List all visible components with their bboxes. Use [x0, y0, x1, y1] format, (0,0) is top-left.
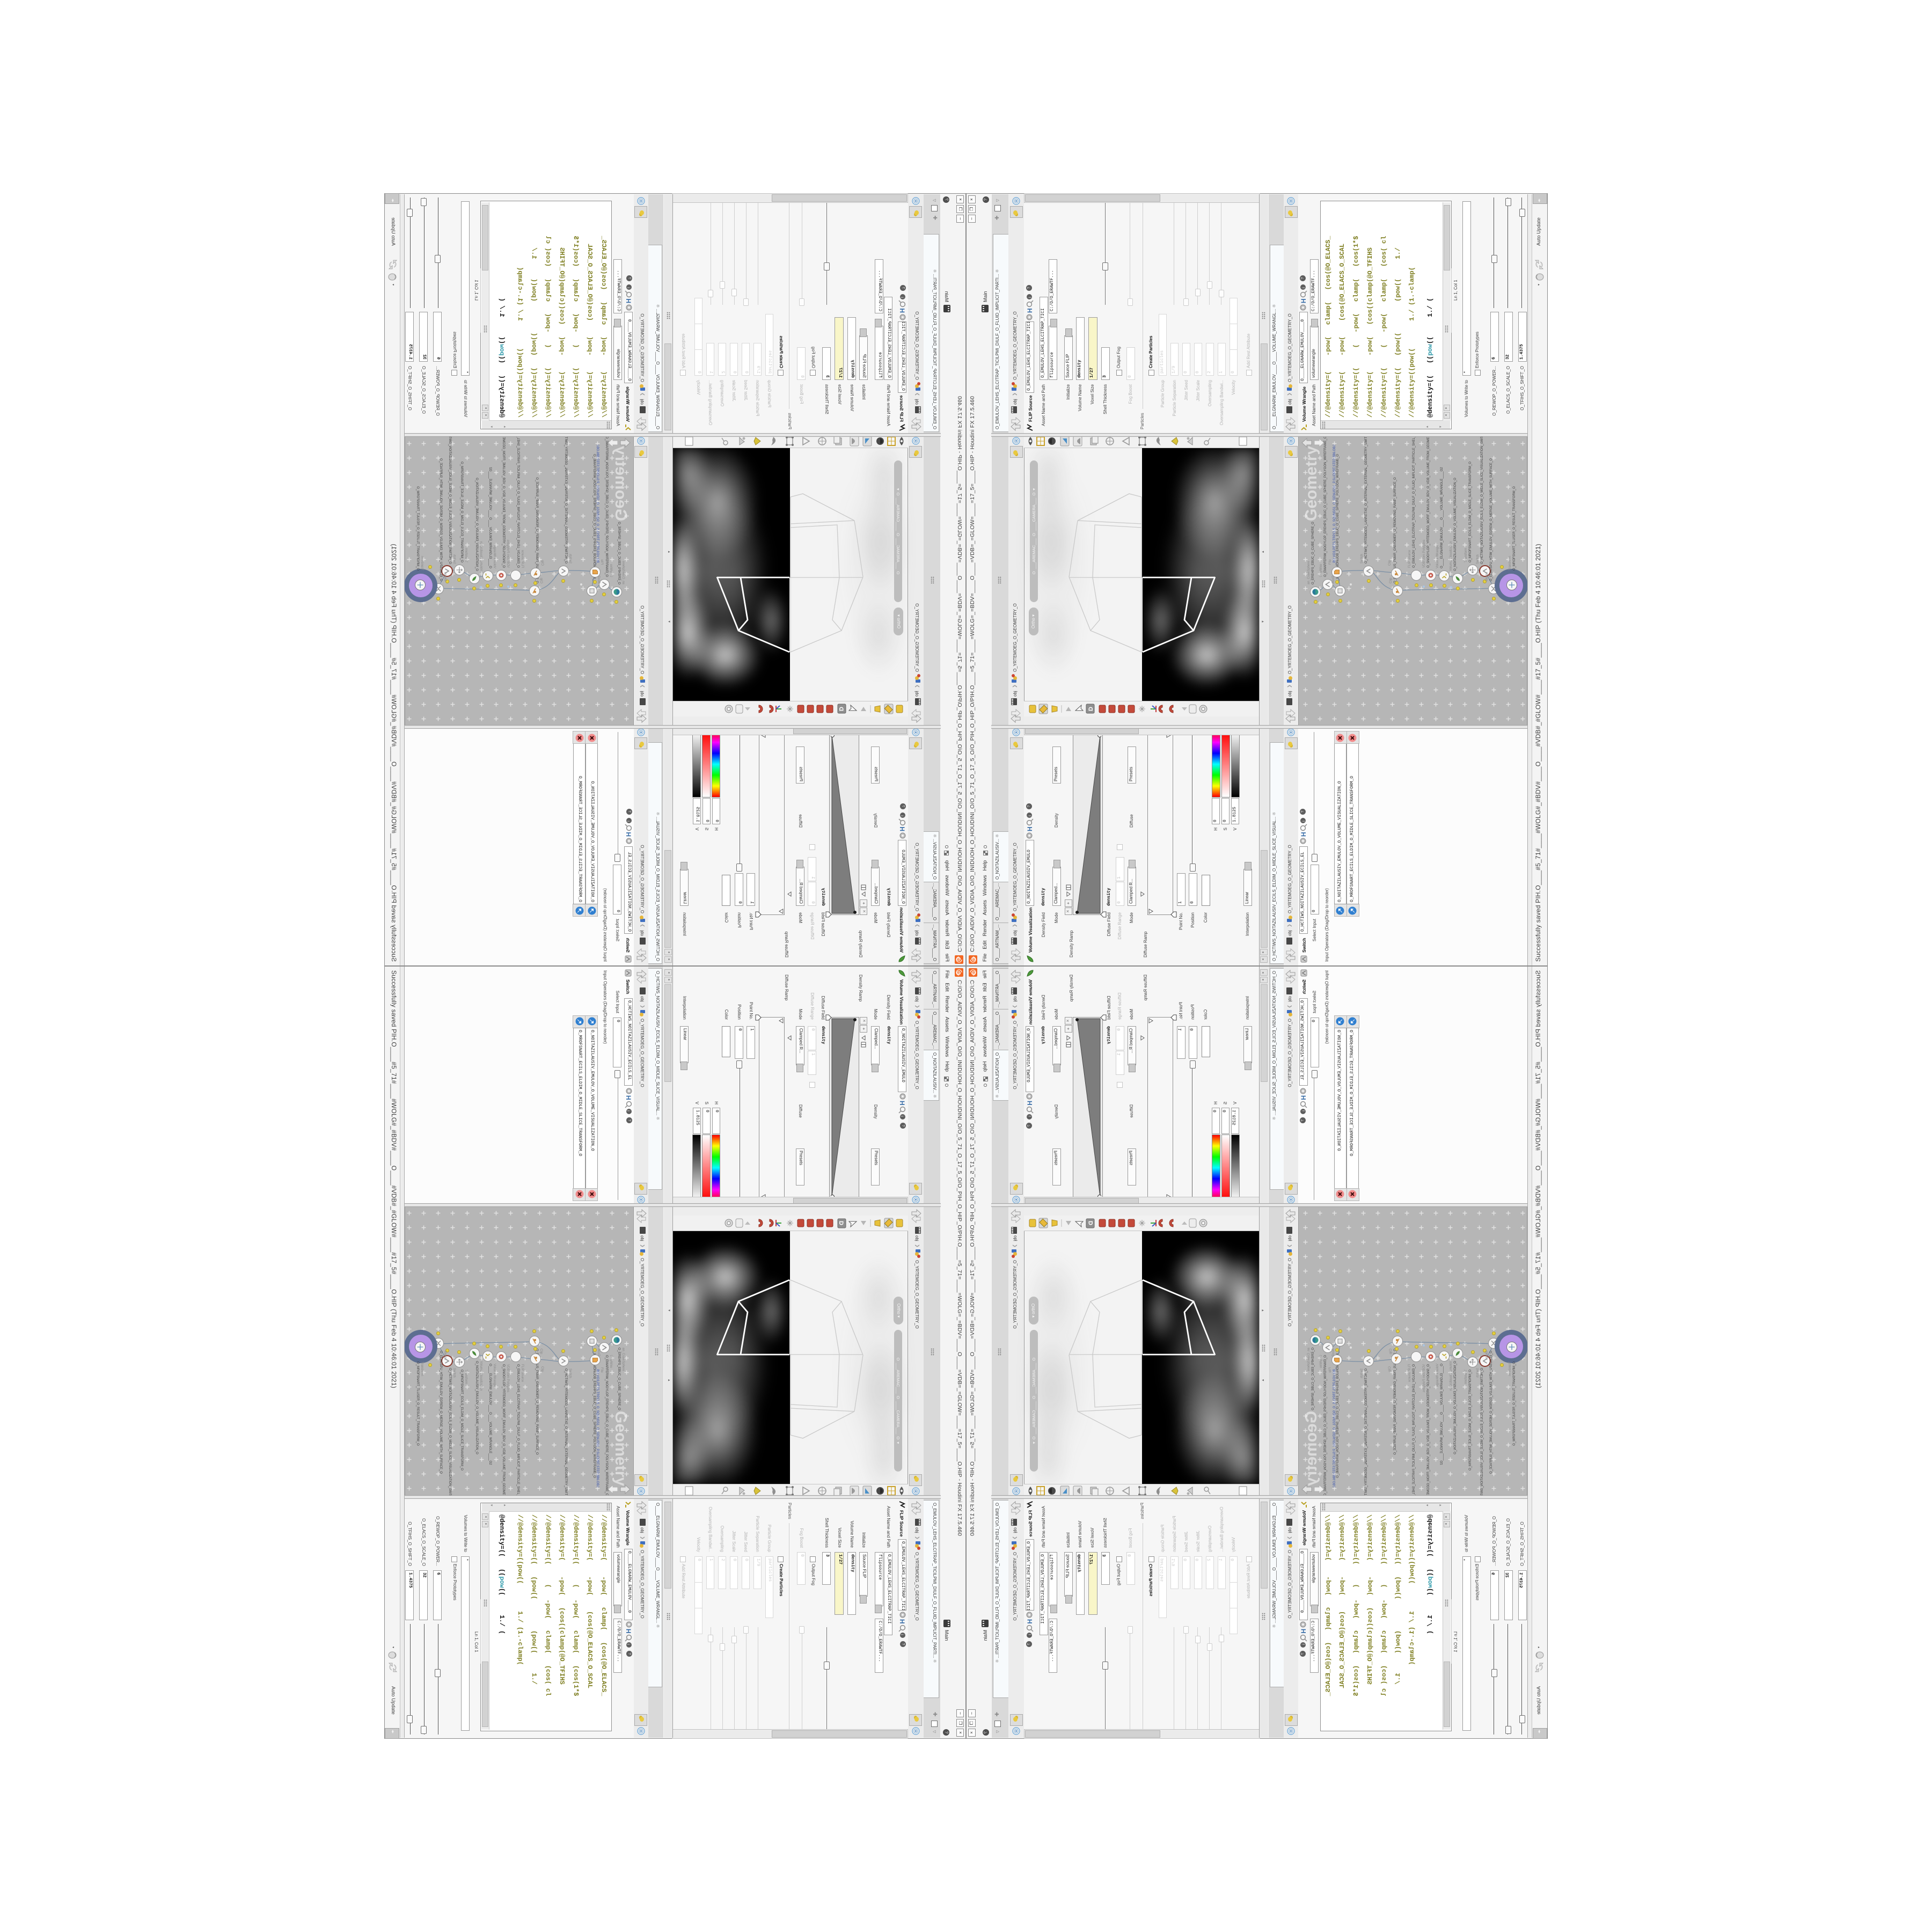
svg-text:i: i: [1028, 297, 1033, 298]
svg-text:i: i: [900, 297, 905, 298]
svg-text:i: i: [626, 1644, 631, 1645]
svg-text:H: H: [1026, 1101, 1034, 1106]
svg-text:i: i: [1301, 1110, 1306, 1111]
svg-text:H: H: [1300, 1629, 1307, 1634]
svg-text:D: D: [1088, 707, 1094, 711]
svg-text:i: i: [1028, 1634, 1033, 1635]
svg-text:i: i: [1028, 815, 1033, 816]
svg-text:i: i: [1301, 287, 1306, 288]
svg-text:H: H: [1026, 1619, 1034, 1624]
svg-text:i: i: [900, 1634, 905, 1635]
svg-text:i: i: [1301, 1644, 1306, 1645]
svg-text:H: H: [625, 832, 632, 837]
svg-text:i: i: [900, 815, 905, 816]
svg-text:i: i: [1028, 1116, 1033, 1117]
svg-text:i: i: [900, 1116, 905, 1117]
svg-text:i: i: [626, 821, 631, 822]
svg-text:H: H: [625, 298, 632, 303]
svg-text:H: H: [1026, 826, 1034, 831]
svg-text:H: H: [1300, 298, 1307, 303]
svg-text:D: D: [838, 707, 844, 711]
svg-text:i: i: [626, 1110, 631, 1111]
svg-text:H: H: [898, 1619, 906, 1624]
svg-text:H: H: [1300, 832, 1307, 837]
svg-text:D: D: [1088, 1221, 1094, 1225]
svg-text:H: H: [898, 826, 906, 831]
svg-text:H: H: [1300, 1095, 1307, 1100]
svg-text:H: H: [898, 1101, 906, 1106]
svg-text:i: i: [1301, 821, 1306, 822]
svg-text:H: H: [1026, 308, 1034, 313]
svg-text:H: H: [625, 1629, 632, 1634]
svg-text:i: i: [626, 287, 631, 288]
svg-text:H: H: [625, 1095, 632, 1100]
svg-text:H: H: [898, 308, 906, 313]
svg-text:D: D: [838, 1221, 844, 1225]
